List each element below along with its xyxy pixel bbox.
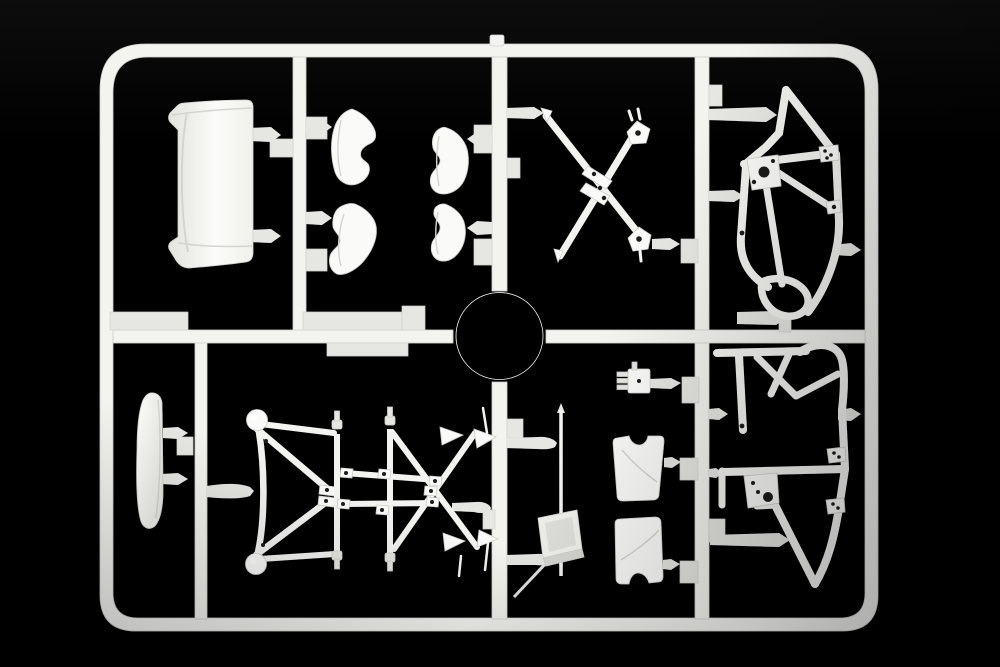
part-seat-back-upper <box>613 436 664 501</box>
runner-vertical-a <box>293 57 306 333</box>
part-seat-backs <box>613 436 664 584</box>
part-pushrods <box>332 407 395 571</box>
molded-tab <box>327 343 408 356</box>
cage-boss <box>744 473 779 508</box>
ball-end <box>247 410 268 431</box>
part-seat-shells <box>329 109 468 274</box>
sprue-photo-svg <box>0 0 1000 667</box>
molded-tab <box>303 312 402 330</box>
molded-tab <box>110 312 188 330</box>
part-seat-shell-lower-left <box>329 204 376 275</box>
part-small-bracket <box>617 362 650 393</box>
part-x-brace <box>541 108 651 262</box>
part-lattice-truss <box>337 408 498 576</box>
part-ball-truss <box>246 410 337 575</box>
sprue-photo <box>0 0 1000 667</box>
part-antenna-rod-box <box>514 403 584 597</box>
part-roll-cage-upper <box>740 90 841 316</box>
runner-vertical-d <box>195 340 207 619</box>
runner-horizontal-right <box>546 330 865 343</box>
part-seat-back-lower <box>615 517 663 584</box>
runner-vertical-b-bottom <box>492 382 507 619</box>
part-wing-element <box>137 393 163 529</box>
part-roll-cage-lower <box>717 345 846 584</box>
part-curved-panel <box>169 100 254 268</box>
runner-horizontal-left <box>113 330 453 343</box>
ball-end <box>246 554 267 575</box>
tilted-box <box>538 510 584 566</box>
alignment-ring <box>456 293 543 380</box>
runner-vertical-b-top <box>492 57 507 291</box>
injection-gate-stub <box>490 35 504 46</box>
molded-tab <box>402 306 425 330</box>
part-seat-shell-lower-right <box>431 204 465 261</box>
